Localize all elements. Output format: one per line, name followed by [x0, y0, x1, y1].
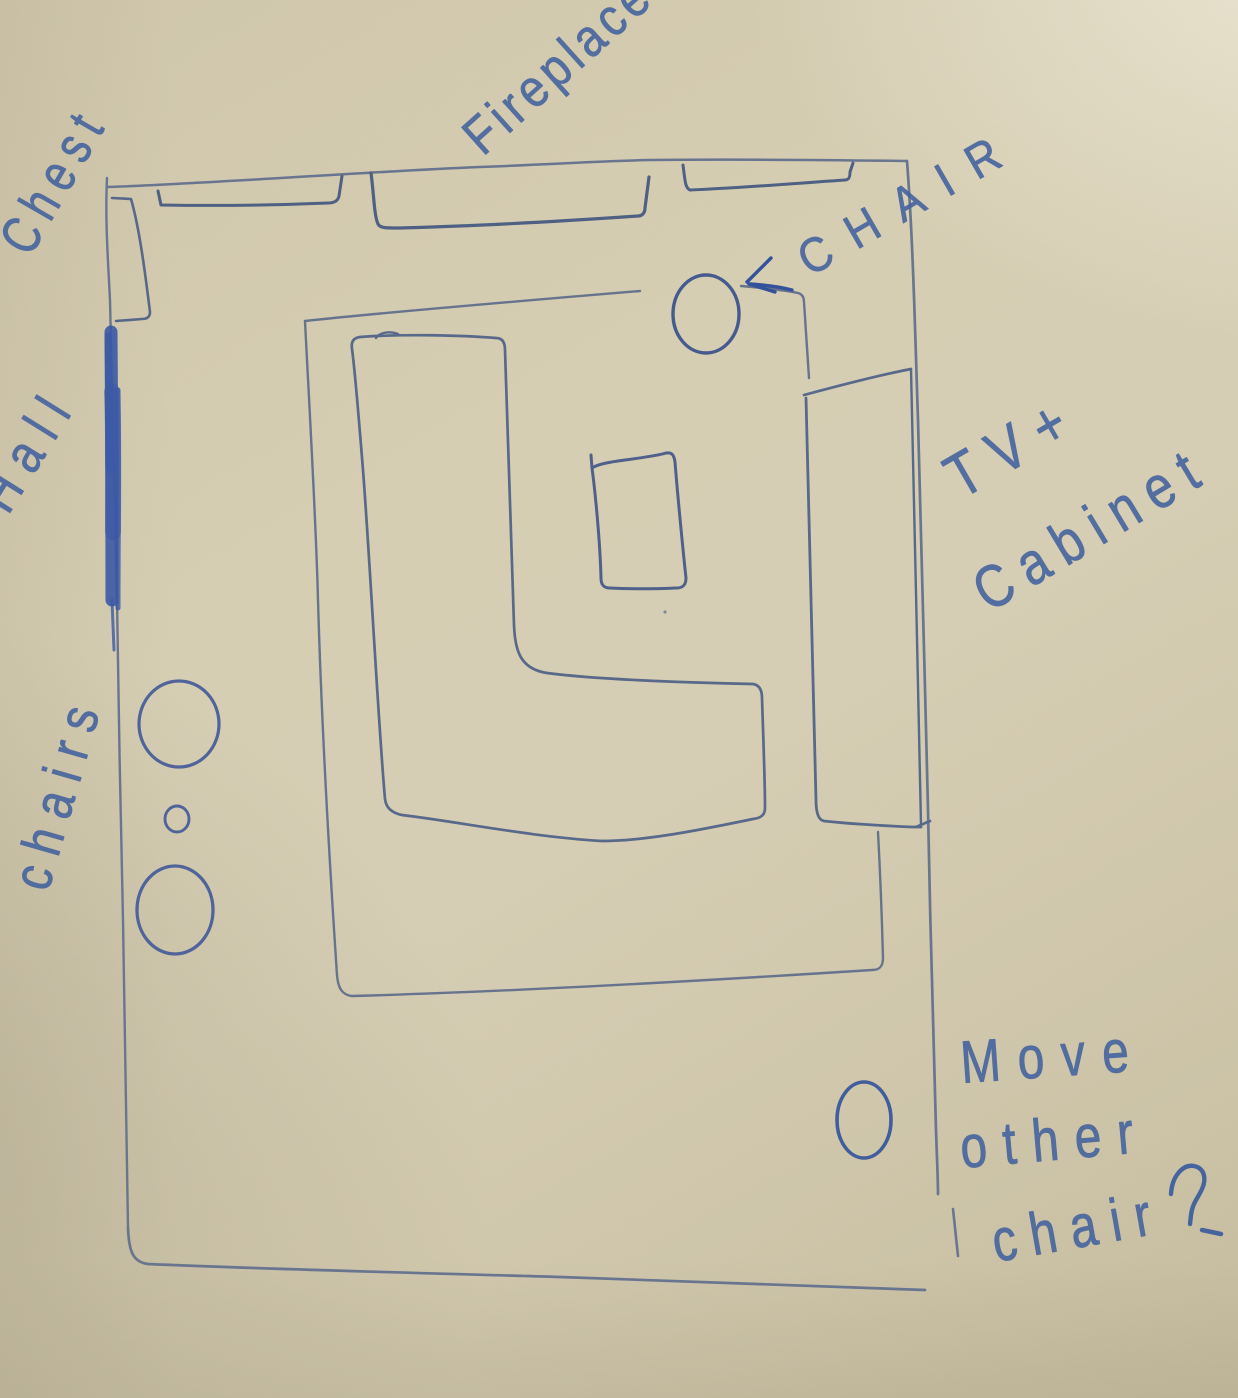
svg-text:Move: Move: [958, 1016, 1148, 1096]
svg-text:Fireplace: Fireplace: [451, 0, 665, 166]
svg-text:chair: chair: [987, 1178, 1170, 1275]
svg-text:CHAIR: CHAIR: [788, 115, 1029, 286]
svg-text:TV+: TV+: [933, 380, 1093, 513]
svg-text:chairs: chairs: [0, 686, 115, 896]
svg-text:Chest: Chest: [0, 96, 121, 265]
svg-text:Hall: Hall: [0, 375, 90, 523]
svg-text:other: other: [957, 1098, 1152, 1182]
